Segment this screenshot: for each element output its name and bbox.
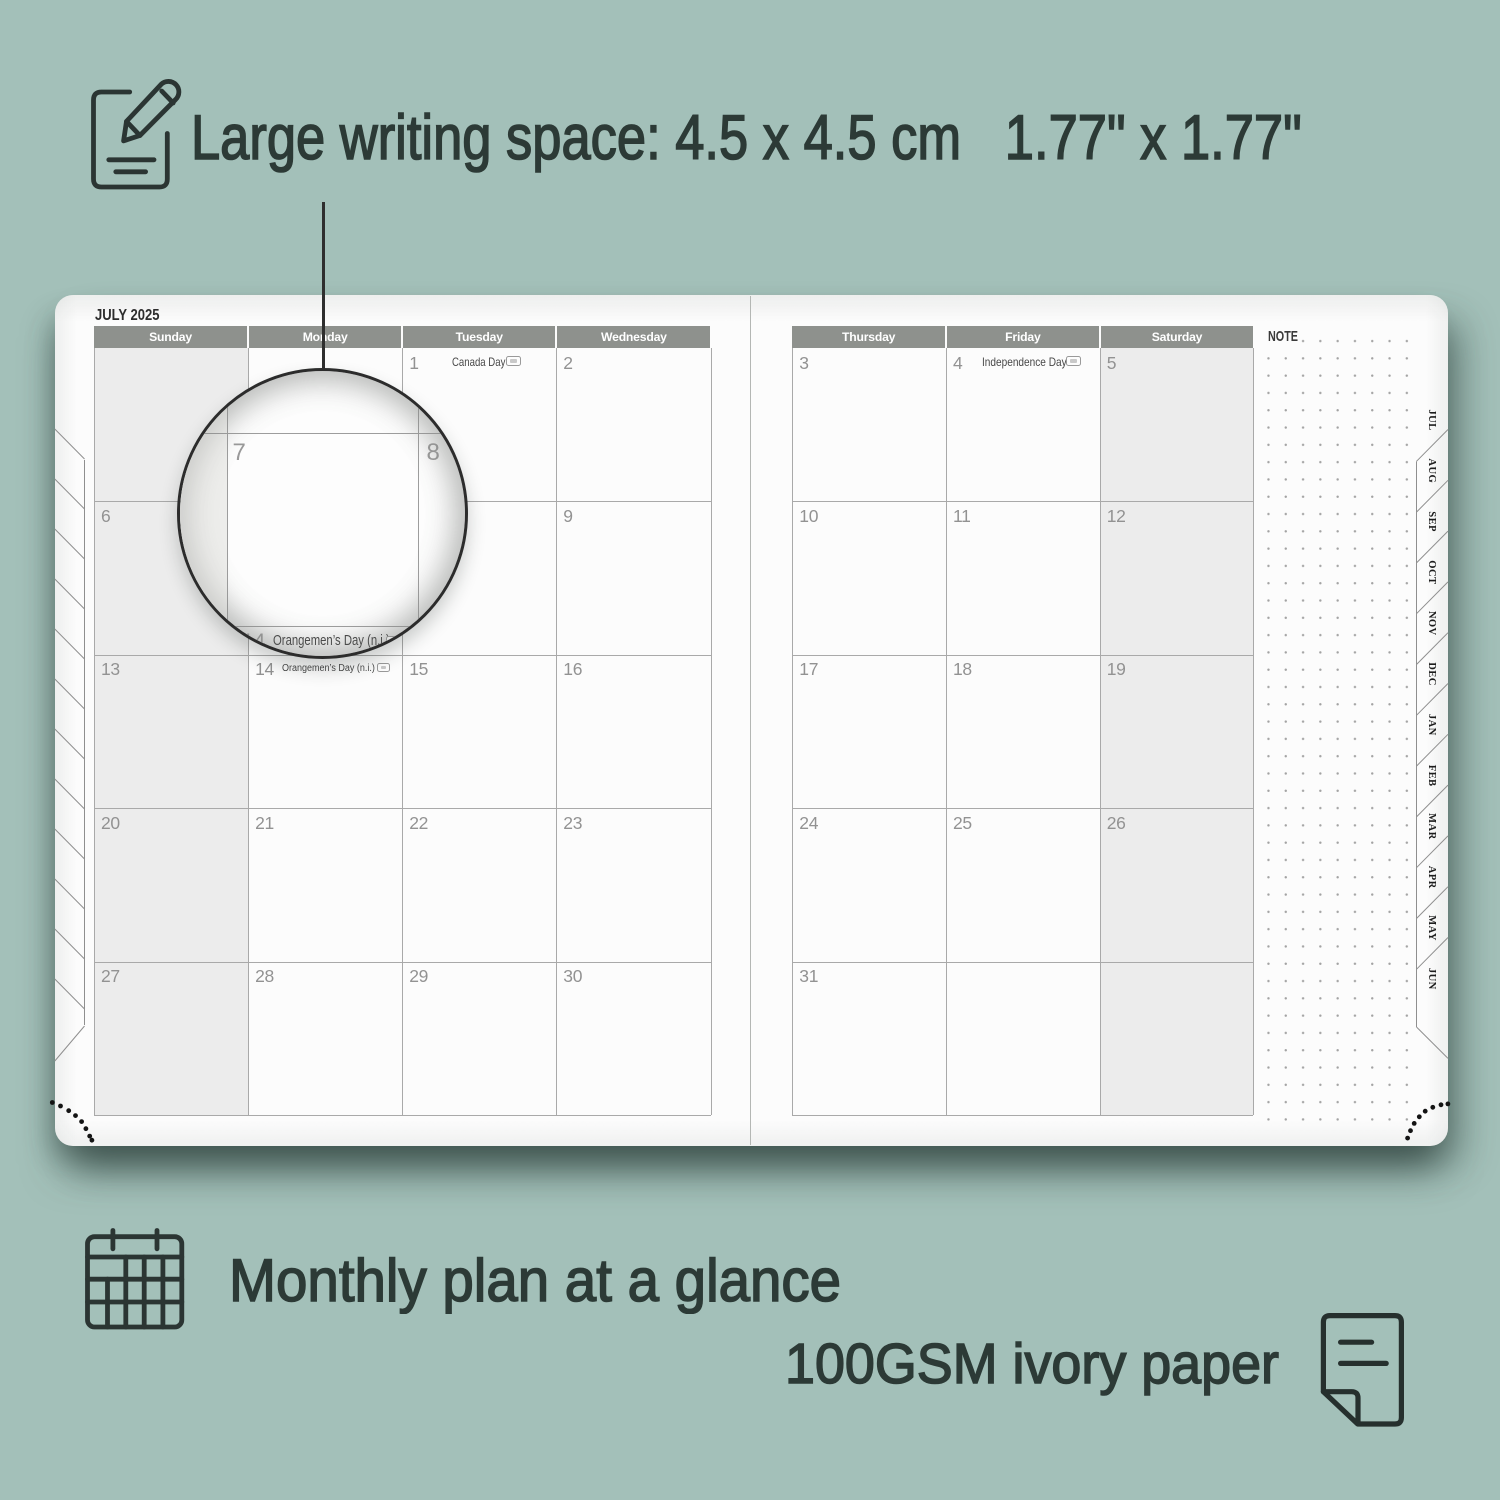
svg-text:JUL: JUL — [1426, 409, 1437, 430]
svg-text:MAR: MAR — [1426, 813, 1437, 840]
svg-text:APR: APR — [1426, 866, 1437, 889]
svg-text:AUG: AUG — [1426, 458, 1437, 483]
svg-text:OCT: OCT — [1426, 560, 1437, 584]
svg-text:MAY: MAY — [1426, 915, 1437, 941]
svg-text:DEC: DEC — [1426, 662, 1437, 686]
svg-text:SEP: SEP — [1426, 511, 1437, 532]
svg-text:NOV: NOV — [1426, 611, 1437, 636]
svg-text:JAN: JAN — [1426, 714, 1437, 736]
svg-text:JUN: JUN — [1426, 968, 1437, 990]
svg-text:FEB: FEB — [1426, 765, 1437, 787]
